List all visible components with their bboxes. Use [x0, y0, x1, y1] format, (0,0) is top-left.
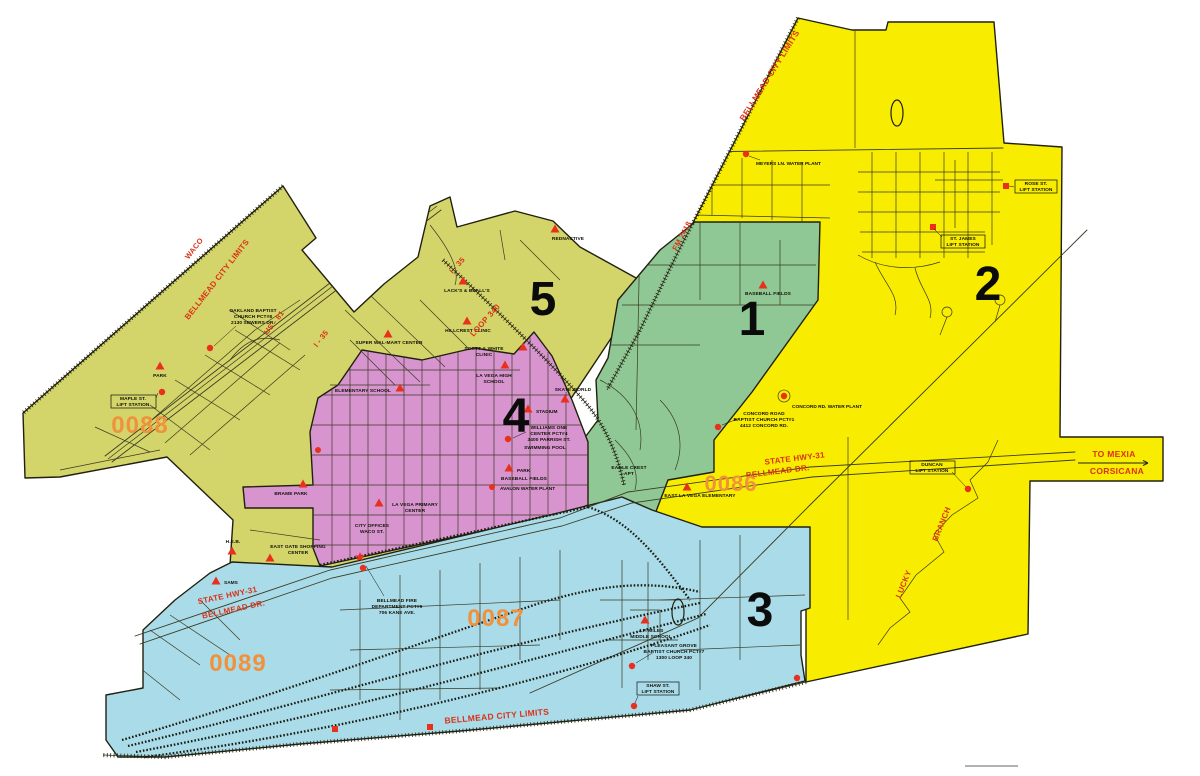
label-maple-lift-2: LIFT STATION [117, 402, 150, 408]
label-eagle-crest-2: APT [624, 471, 634, 477]
label-la-vega-high-1: LA VEGA HIGH [476, 373, 512, 379]
label-city-offices-2: WACO ST. [360, 529, 384, 535]
label-jp-miles-2: MIDDLE SCHOOL [630, 634, 672, 640]
label-heb: H.E.B. [226, 539, 241, 545]
label-james-lift-2: LIFT STATION [947, 242, 980, 248]
dot-marker-shaw-lift [631, 703, 637, 709]
label-eagle-crest-1: EAGLE CREST [611, 465, 646, 471]
label-shaw-lift-1: SHAW ST. [646, 683, 669, 689]
dot-marker-concord-church [715, 424, 721, 430]
label-city-offices-1: CITY OFFICES [355, 523, 390, 529]
label-williams-1: WILLIAMS ONE [531, 425, 568, 431]
label-duncan-lift-1: DUNCAN [921, 462, 943, 468]
label-scott-white-2: CLINIC [476, 352, 493, 358]
label-pleasant-grove-3: 1300 LOOP 340 [656, 655, 692, 661]
label-corsicana: CORSICANA [1090, 466, 1144, 476]
label-skate-world: SKATE WORLD [555, 387, 592, 393]
label-concord-church-1: CONCORD ROAD [743, 411, 785, 417]
label-lacks-bealls: LACK'S & BEALL'S [444, 288, 490, 294]
label-concord-church-2: BAPTIST CHURCH PCT#1 [734, 417, 795, 423]
bellmead-district-map: BASEBALL FIELDS REDNACTIVE LACK'S & BEAL… [0, 0, 1200, 776]
label-rose-lift-1: ROSE ST. [1025, 181, 1048, 187]
square-marker-boundary-sw2 [427, 724, 433, 730]
label-east-gate-2: CENTER [288, 550, 309, 556]
label-la-vega-primary-2: CENTER [405, 508, 426, 514]
label-jp-miles-1: J.P. MILES [639, 628, 665, 634]
label-east-gate-1: EAST GATE SHOPPING [270, 544, 326, 550]
label-sams: SAMS [224, 580, 239, 586]
label-super-walmart: SUPER WAL-MART CENTER [355, 340, 423, 346]
dot-marker-pleasant-grove [629, 663, 635, 669]
label-fire-dept-1: BELLMEAD FIRE [377, 598, 418, 604]
label-rednactive: REDNACTIVE [552, 236, 585, 242]
label-brame-park: BRAME PARK [274, 491, 308, 497]
label-park-0088: PARK [153, 373, 167, 379]
label-shaw-lift-2: LIFT STATION [642, 689, 675, 695]
label-williams-2: CENTER PCT#4 [530, 431, 567, 437]
label-avalon-water: AVALON WATER PLANT [500, 486, 555, 492]
label-concord-water: CONCORD RD. WATER PLANT [792, 404, 862, 410]
label-scott-white-1: SCOTT & WHITE [464, 346, 504, 352]
label-concord-church-3: 4412 CONCORD RD. [740, 423, 788, 429]
label-baseball-fields-pink: BASEBALL FIELDS [501, 476, 548, 482]
label-elementary: ELEMENTARY SCHOOL [335, 388, 391, 394]
label-fire-dept-3: 706 KANE AVE. [379, 610, 415, 616]
dot-marker-meyers-water [743, 151, 749, 157]
label-meyers-water: MEYERS LN. WATER PLANT [756, 161, 821, 167]
precinct-0088: 0088 [111, 412, 168, 439]
label-to-mexia: TO MEXIA [1092, 449, 1135, 459]
dot-marker-boundary-se [794, 675, 800, 681]
label-pleasant-grove-1: PLEASANT GROVE [651, 643, 698, 649]
label-la-vega-primary-1: LA VEGA PRIMARY [392, 502, 438, 508]
label-rose-lift-2: LIFT STATION [1020, 187, 1053, 193]
district-number-1: 1 [739, 293, 766, 346]
label-duncan-lift-2: LIFT STATION [916, 468, 949, 474]
map-canvas: BASEBALL FIELDS REDNACTIVE LACK'S & BEAL… [0, 0, 1200, 776]
label-james-lift-1: ST. JAMES [950, 236, 976, 242]
dot-marker-avalon-water [489, 484, 495, 490]
dot-marker-concord-water [781, 393, 787, 399]
label-pleasant-grove-2: BAPTIST CHURCH PCT#7 [644, 649, 705, 655]
label-oakland-church-2: CHURCH PCT#8 [234, 314, 272, 320]
label-fire-dept-2: DEPARTMENT PCT#9 [372, 604, 423, 610]
label-park-pink: PARK [517, 468, 531, 474]
label-stadium: STADIUM [536, 409, 558, 415]
label-oakland-church-1: OAKLAND BAPTIST [229, 308, 276, 314]
square-marker-james-lift [930, 224, 936, 230]
square-marker-rose-lift [1003, 183, 1009, 189]
label-williams-4: SWIMMING POOL [524, 445, 566, 451]
district-number-2: 2 [975, 258, 1002, 311]
district-number-3: 3 [747, 584, 774, 637]
dot-marker-city-offices [360, 565, 366, 571]
precinct-0087: 0087 [467, 605, 524, 632]
district-number-5: 5 [530, 273, 557, 326]
precinct-0086: 0086 [705, 471, 758, 496]
label-maple-lift-1: MAPLE ST. [120, 396, 146, 402]
district-number-4: 4 [503, 390, 530, 443]
label-la-vega-high-2: SCHOOL [483, 379, 504, 385]
dot-marker-oakland-church [207, 345, 213, 351]
label-williams-3: 3400 PARRISH ST. [527, 437, 570, 443]
dot-marker-maple-lift [159, 389, 165, 395]
square-marker-boundary-sw1 [332, 726, 338, 732]
dot-marker-plaza [315, 447, 321, 453]
precinct-0089: 0089 [209, 650, 266, 677]
